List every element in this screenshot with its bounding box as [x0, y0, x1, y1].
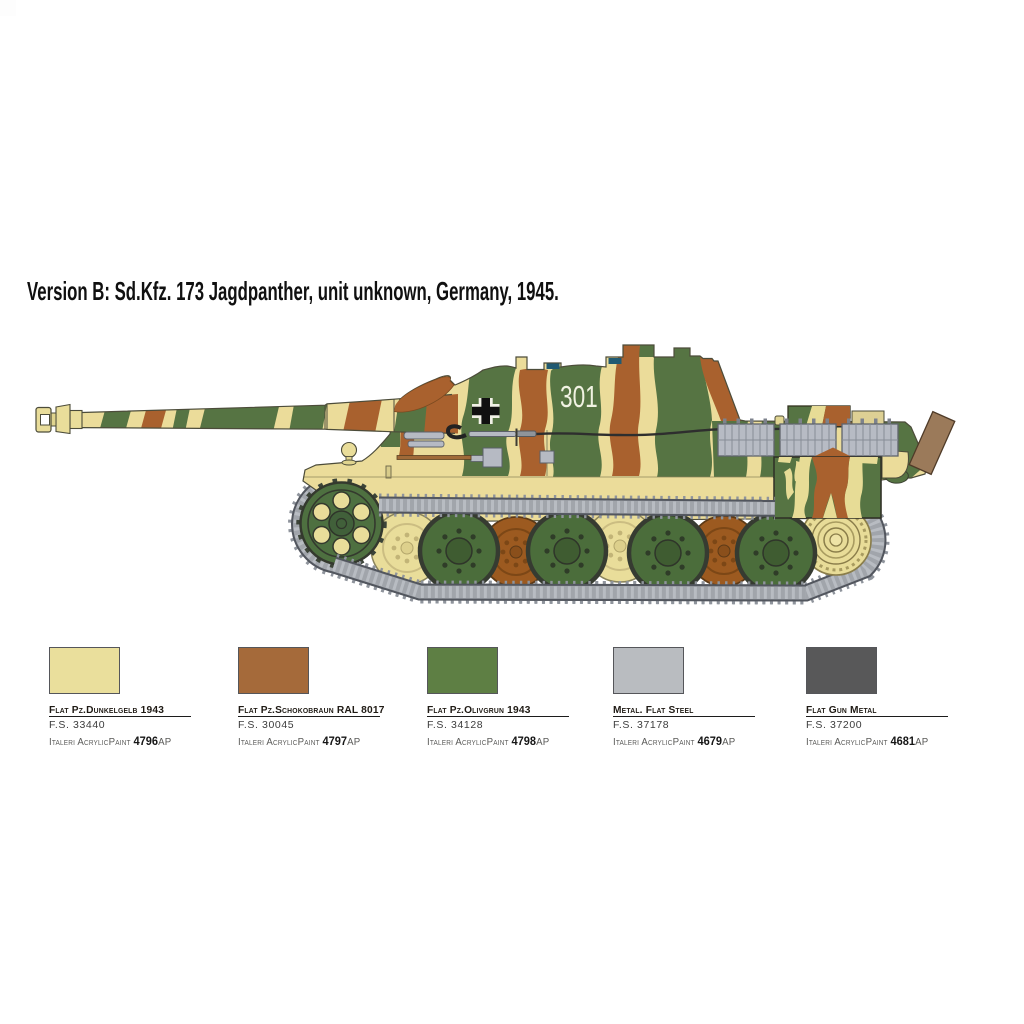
svg-text:301: 301	[560, 378, 598, 413]
